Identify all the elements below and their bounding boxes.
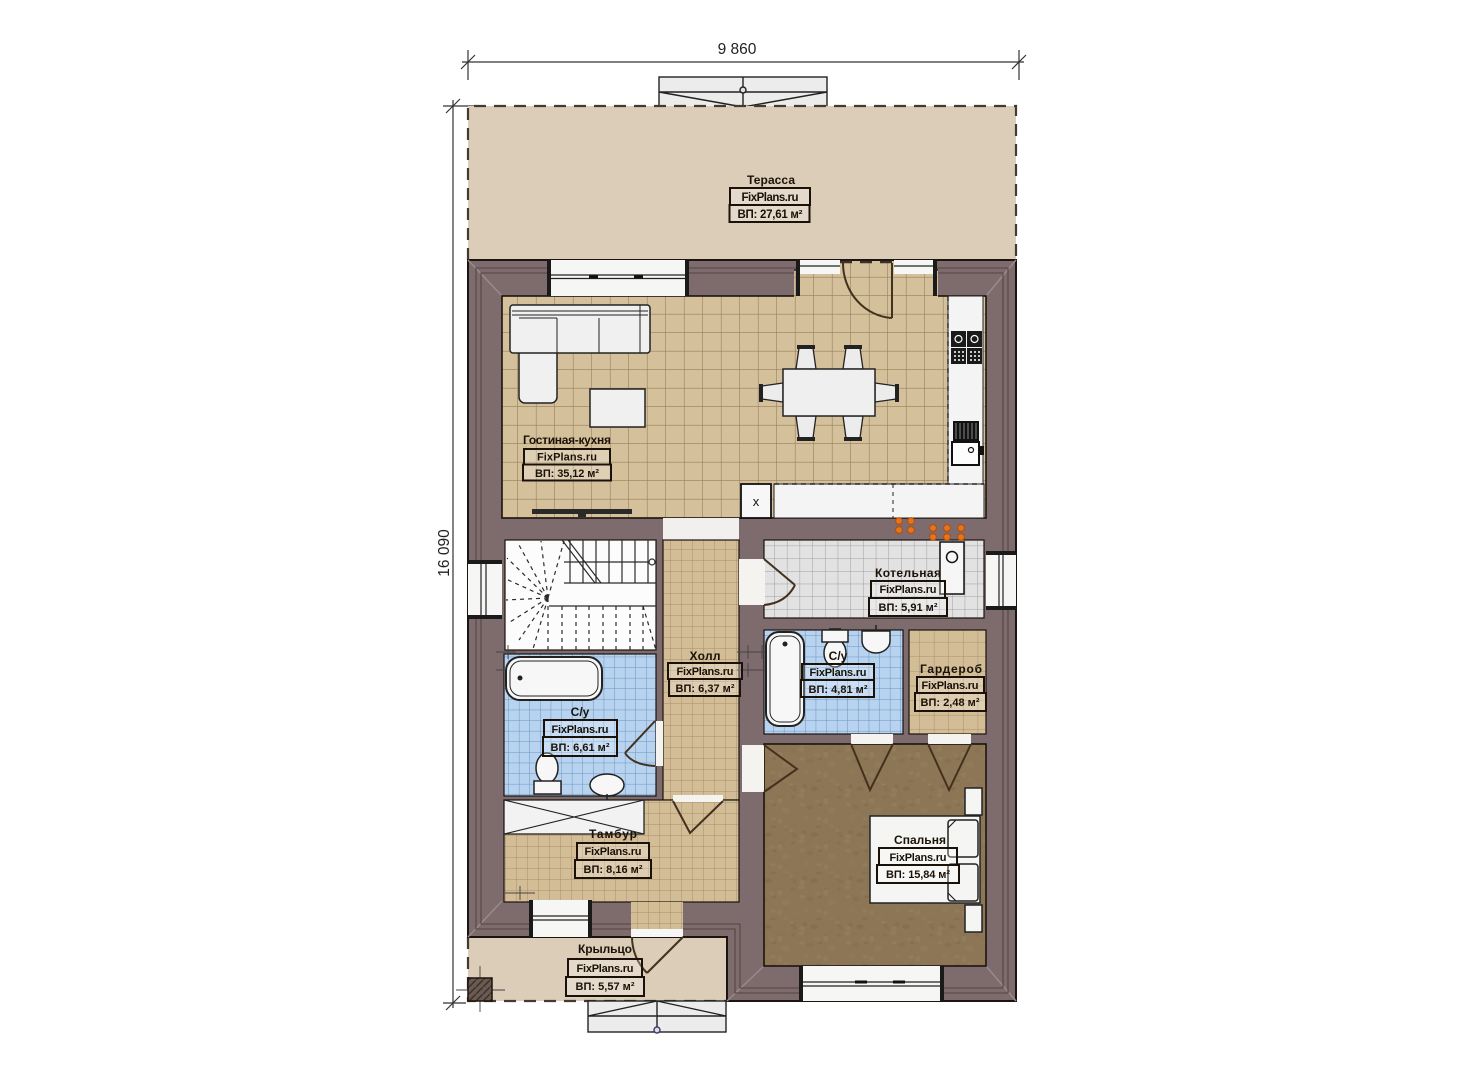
- svg-text:FixPlans.ru: FixPlans.ru: [677, 666, 734, 678]
- svg-text:Тамбур: Тамбур: [589, 827, 637, 841]
- svg-text:ВП: 6,61 м²: ВП: 6,61 м²: [551, 742, 610, 754]
- svg-text:Спальня: Спальня: [894, 833, 946, 847]
- svg-text:Гостиная-кухня: Гостиная-кухня: [523, 433, 611, 447]
- svg-text:ВП: 8,16 м²: ВП: 8,16 м²: [584, 864, 643, 876]
- svg-text:FixPlans.ru: FixPlans.ru: [552, 724, 609, 736]
- svg-text:FixPlans.ru: FixPlans.ru: [880, 584, 937, 596]
- svg-text:FixPlans.ru: FixPlans.ru: [537, 452, 597, 464]
- svg-text:FixPlans.ru: FixPlans.ru: [577, 963, 634, 975]
- svg-text:FixPlans.ru: FixPlans.ru: [742, 192, 799, 204]
- svg-text:Котельная: Котельная: [875, 566, 941, 580]
- svg-text:9 860: 9 860: [718, 41, 757, 58]
- svg-text:Холл: Холл: [690, 649, 721, 663]
- svg-text:С/у: С/у: [829, 649, 848, 663]
- svg-text:FixPlans.ru: FixPlans.ru: [810, 667, 867, 679]
- svg-text:Терасса: Терасса: [747, 173, 795, 187]
- svg-text:ВП: 2,48 м²: ВП: 2,48 м²: [921, 697, 980, 709]
- svg-text:ВП: 27,61 м²: ВП: 27,61 м²: [738, 209, 803, 221]
- svg-text:x: x: [753, 494, 760, 509]
- svg-text:ВП: 5,91 м²: ВП: 5,91 м²: [879, 602, 938, 614]
- svg-text:FixPlans.ru: FixPlans.ru: [922, 680, 979, 692]
- svg-text:Крыльцо: Крыльцо: [578, 942, 632, 956]
- svg-text:ВП: 35,12 м²: ВП: 35,12 м²: [535, 468, 599, 480]
- svg-text:16 090: 16 090: [436, 529, 453, 577]
- svg-text:Гардероб: Гардероб: [920, 662, 982, 676]
- svg-text:FixPlans.ru: FixPlans.ru: [585, 846, 642, 858]
- svg-text:С/у: С/у: [571, 705, 590, 719]
- svg-text:ВП: 15,84 м²: ВП: 15,84 м²: [886, 869, 950, 881]
- svg-text:ВП: 6,37 м²: ВП: 6,37 м²: [676, 683, 735, 695]
- svg-text:ВП: 4,81 м²: ВП: 4,81 м²: [809, 684, 868, 696]
- svg-text:ВП: 5,57 м²: ВП: 5,57 м²: [576, 981, 635, 993]
- svg-text:FixPlans.ru: FixPlans.ru: [890, 852, 947, 864]
